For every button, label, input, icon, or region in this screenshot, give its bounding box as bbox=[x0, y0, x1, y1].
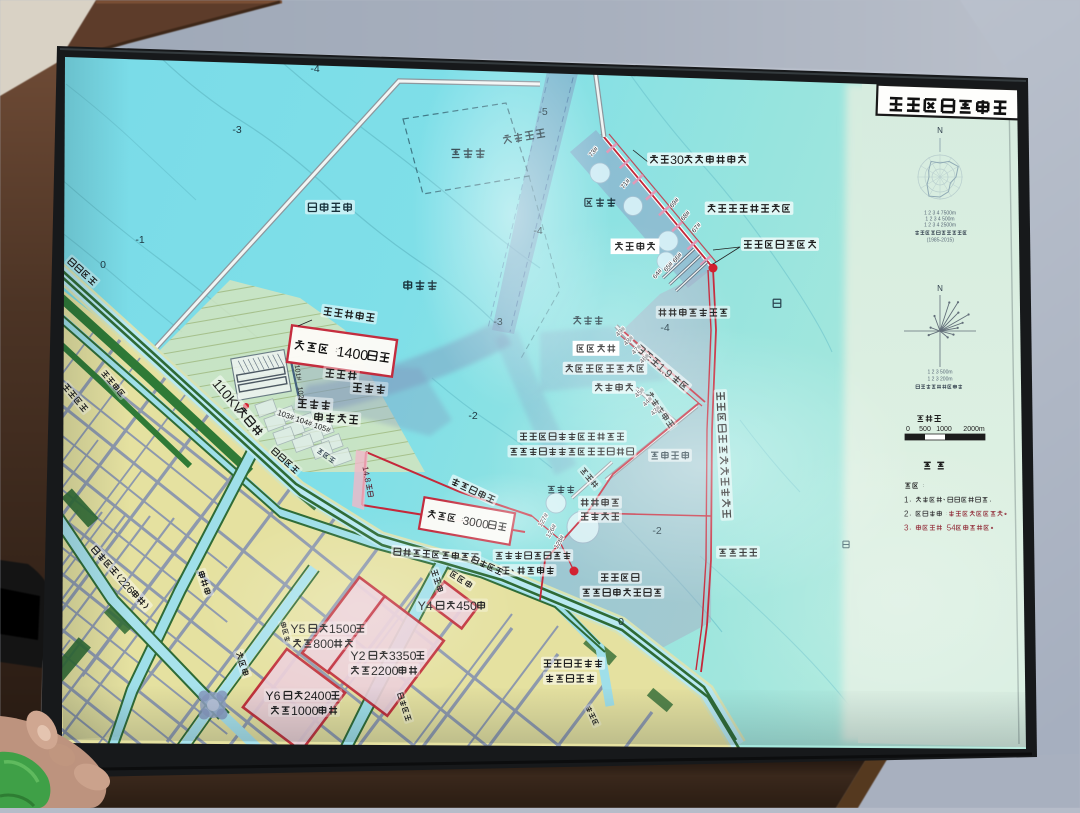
svg-text:N: N bbox=[937, 284, 943, 293]
svg-text:-3: -3 bbox=[232, 124, 241, 136]
svg-text:1 2 3 4 2500m: 1 2 3 4 2500m bbox=[924, 223, 956, 229]
svg-text:30: 30 bbox=[670, 153, 684, 167]
svg-text:1000: 1000 bbox=[936, 426, 952, 433]
svg-text:1 2 3 500m: 1 2 3 500m bbox=[928, 370, 953, 376]
svg-text:(1985-2015): (1985-2015) bbox=[927, 238, 955, 244]
svg-text:500: 500 bbox=[919, 426, 931, 433]
svg-text:-1: -1 bbox=[135, 234, 144, 246]
svg-text:N: N bbox=[937, 126, 943, 135]
svg-text:-2: -2 bbox=[468, 410, 477, 422]
svg-text:0: 0 bbox=[618, 616, 624, 628]
svg-text:2000m: 2000m bbox=[963, 426, 985, 433]
svg-text:1 2 3 200m: 1 2 3 200m bbox=[928, 377, 953, 383]
